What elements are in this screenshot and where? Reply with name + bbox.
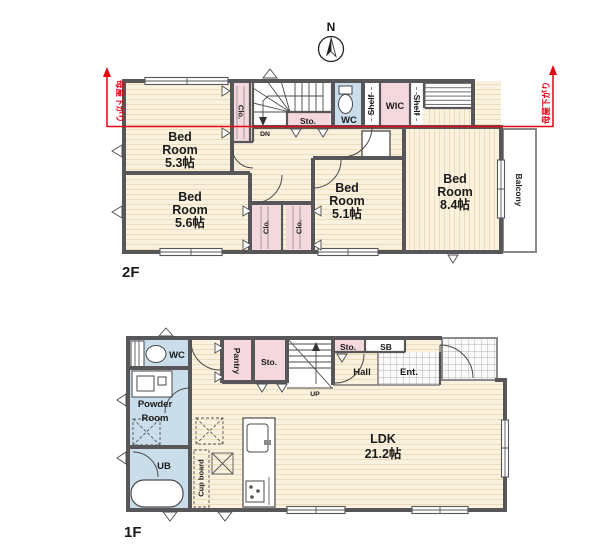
bedroom3-label-line1: Bed [335,181,359,195]
2f-shelf-left-label: Shelf [366,94,376,115]
bedroom2-label-line2: Room [172,203,207,217]
1f-porch-area [442,338,497,380]
2f-wc-label: WC [341,115,357,126]
2f-closet-top-label: Clo. [237,105,246,119]
1f-entrance-label: Ent. [400,367,418,378]
floorplan-canvas: N [0,0,600,546]
2f-balcony-label: Balcony [514,173,524,206]
kitchen-counter [243,418,275,507]
2f-wic-label: WIC [386,101,405,112]
bedroom4-label-line2: Room [437,185,472,199]
roof-note-right-label: 母屋下がり [541,81,551,124]
2f-storage-label: Sto. [300,116,316,126]
toilet-icon-2f [339,86,353,114]
roof-note-arrow-right [549,65,557,75]
floorplan-svg: N [0,0,600,546]
1f-storage-kitchen-label: Sto. [261,357,277,367]
1f-ldk-size: 21.2帖 [365,446,402,461]
1f-ub-label: UB [157,461,171,472]
2f-floor-label: 2F [122,264,140,281]
1f-stairs-up-label: UP [310,391,320,398]
1f-powder-label-line2: Room [142,413,169,424]
bedroom1-label-line1: Bed [168,130,192,144]
bedroom4-size: 8.4帖 [440,197,470,212]
2f-shelf-right-label: Shelf [412,95,422,116]
2f-stairs-dn-label: DN [260,131,270,138]
compass: N [319,20,344,62]
1f-wc-label: WC [169,350,185,361]
bedroom1-size: 5.3帖 [165,155,195,170]
bedroom4-label-line1: Bed [443,172,467,186]
bedroom3-size: 5.1帖 [332,206,362,221]
bedroom2-label-line1: Bed [178,190,202,204]
1f-pantry-label: Pantry [232,348,242,375]
1f-ldk-label: LDK [370,432,396,446]
compass-north-label: N [327,20,336,34]
1f-floor-label: 1F [124,524,142,541]
2f-bedroom4-floor-nook [425,108,473,127]
kitchen-stove-icon [246,481,264,502]
bathtub-icon [131,480,183,507]
kitchen-faucet-icon [264,440,271,445]
2f-closet-right-label: Clo. [295,220,304,234]
1f-powder-label-line1: Powder [138,399,173,410]
roof-note-arrow-left [103,67,111,77]
1f-shoebox-label: SB [380,342,392,352]
bedroom1-label-line2: Room [162,143,197,157]
1f-outside-corner [497,336,507,378]
sink-icon [132,371,172,397]
roof-note-left-label: 母屋下がり [115,80,125,123]
bedroom2-size: 5.6帖 [175,215,205,230]
2f-roof-hatch [425,81,473,108]
floor-2f-plan: Bed Room 5.3帖 Bed Room 5.6帖 Bed Room 5.1… [103,65,557,281]
1f-hall-label: Hall [353,367,370,378]
bedroom3-label-line2: Room [329,194,364,208]
floor-1f-plan: WC Powder Room UB Pantry Sto. Sto. SB Ha… [117,328,509,541]
1f-storage-hall-label: Sto. [340,342,356,352]
2f-closet-left-label: Clo. [262,220,271,234]
kitchen-sink-icon [247,424,268,452]
1f-cupboard-label: Cup board [197,459,206,497]
